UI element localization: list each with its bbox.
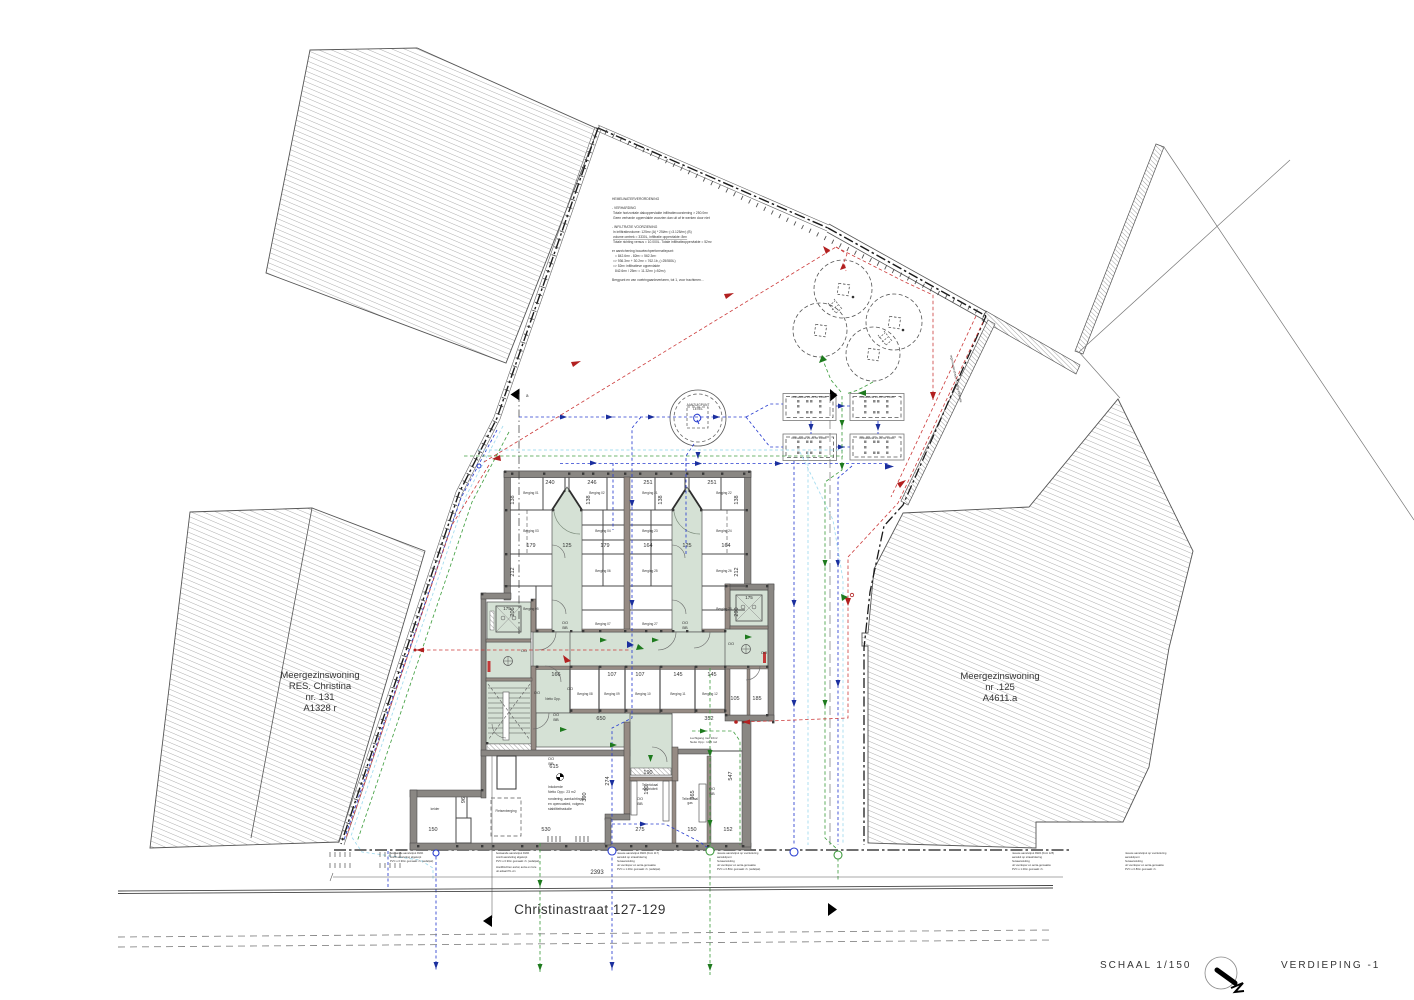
svg-text:Berging 27: Berging 27 [642,622,658,626]
svg-text:PVC u 0.80m gemaakt i.h.: PVC u 0.80m gemaakt i.h. [1125,867,1157,871]
svg-text:212: 212 [734,567,740,576]
svg-text:OO: OO [728,641,734,646]
svg-text:kelder: kelder [431,807,441,811]
svg-text:Berging 07: Berging 07 [595,622,611,626]
svg-text:206: 206 [510,607,516,616]
svg-text:= 842.6m² - 82m² = 562.3m²: = 842.6m² - 82m² = 562.3m² [615,254,657,258]
svg-text:Netto Opp.: Netto Opp. [545,697,561,701]
svg-text:SCHAAL 1/150: SCHAAL 1/150 [1100,960,1191,971]
svg-text:rondering, aanluchtingen: rondering, aanluchtingen [548,797,585,801]
svg-text:Berging 23: Berging 23 [642,529,658,533]
svg-text:OO: OO [761,650,767,655]
svg-text:Berging 10: Berging 10 [635,692,651,696]
svg-text:Berging 01: Berging 01 [523,491,539,495]
svg-text:aansluitpunt: aansluitpunt [1125,855,1140,859]
svg-text:huisaansluiting: huisaansluiting [1125,859,1143,863]
svg-text:650: 650 [596,716,605,722]
svg-text:PVC u 1.00m gemaakt i.h. (asfa: PVC u 1.00m gemaakt i.h. (asfalpat) [617,867,660,871]
svg-text:OO: OO [521,648,527,653]
svg-text:842.6m² / 25m² = 11.32m² (=52m: 842.6m² / 25m² = 11.32m² (=52m²) [615,269,666,273]
svg-text:OO: OO [534,690,540,695]
svg-text:164: 164 [643,543,652,549]
svg-text:Meergezinswoning: Meergezinswoning [960,671,1039,682]
svg-text:nieuwe aansluitput RWA (front: nieuwe aansluitput RWA (front 125) [1012,851,1054,855]
svg-text:A1328 r: A1328 r [303,703,336,714]
svg-text:179: 179 [526,543,535,549]
svg-text:240: 240 [545,480,554,486]
svg-text:RES. Christina: RES. Christina [289,681,352,692]
svg-text:infiltratiekrat 20-20-60 1000L: infiltratiekrat 20-20-60 1000L [791,395,827,399]
svg-text:Totale richting versus = 10.00: Totale richting versus = 10.000L. Totale… [613,240,713,244]
svg-text:Geen verharde oppervlakte voor: Geen verharde oppervlakte voorzien dan u… [613,216,710,220]
svg-text:2393: 2393 [590,870,604,876]
svg-text:251: 251 [643,480,652,486]
svg-text:246: 246 [587,480,596,486]
svg-text:electriciteit: electriciteit [642,787,657,791]
svg-text:BB: BB [553,717,559,722]
svg-text:138: 138 [586,495,592,504]
svg-text:uit voorkoper en aorta-gemaak: uit voorkoper en aorta-gemaakte [717,863,756,867]
svg-text:352: 352 [704,716,713,722]
svg-text:Bergpunt en van voetringaanle: Bergpunt en van voetringaanleverlaren, t… [612,278,704,282]
svg-text:Berging 22: Berging 22 [716,491,732,495]
svg-text:Berging 28: Berging 28 [716,607,732,611]
svg-text:huisaansluiting: huisaansluiting [1012,859,1030,863]
svg-text:150: 150 [687,827,696,833]
svg-text:In infiltratievolume: 125m² (: In infiltratievolume: 125m² (A) * 25l/m²… [613,230,692,234]
svg-text:volume omtrek = 3330L, infiltr: volume omtrek = 3330L, infiltratie opper… [613,235,688,239]
svg-text:290: 290 [734,607,740,616]
svg-text:LEVEL: LEVEL [693,407,703,411]
svg-text:er aanrichening bouwtechperfor: er aanrichening bouwtechperforrnatiepunt… [612,249,674,253]
svg-text:107: 107 [607,672,616,678]
svg-text:Berging 25: Berging 25 [642,569,658,573]
svg-text:PVC u 0.90m gemaakt i.h. (asf: PVC u 0.90m gemaakt i.h. (asfalpat) [390,859,433,863]
svg-text:huisaansluiting: huisaansluiting [617,859,635,863]
svg-text:- VERHARDING: - VERHARDING [612,206,636,210]
svg-text:138: 138 [510,495,516,504]
svg-text:OO: OO [567,686,573,691]
svg-text:infiltratiekrat 20-20-60 1000L: infiltratiekrat 20-20-60 1000L [791,436,827,440]
svg-text:150: 150 [428,827,437,833]
svg-text:BB: BB [637,801,643,806]
svg-text:gas: gas [687,801,693,805]
svg-text:infiltratiekrat 20-20-60 1000L: infiltratiekrat 20-20-60 1000L [859,436,895,440]
svg-text:aansluitpunt: aansluitpunt [717,855,732,859]
svg-text:138: 138 [734,495,740,504]
svg-text:125: 125 [682,543,691,549]
svg-text:Berging 02: Berging 02 [589,491,605,495]
svg-text:Berging 11: Berging 11 [670,692,685,696]
svg-text:wordt aansluiting afgekopt: wordt aansluiting afgekopt [390,855,421,859]
svg-text:nr .125: nr .125 [985,682,1015,693]
svg-text:164: 164 [721,543,730,549]
svg-text:179: 179 [600,543,609,549]
svg-text:107: 107 [635,672,644,678]
svg-text:Hoofdlochten aortal, aorta en: Hoofdlochten aortal, aorta en loze [496,865,537,869]
svg-text:VERDIEPING -1: VERDIEPING -1 [1281,960,1380,971]
svg-text:Inkokerde: Inkokerde [548,785,563,789]
svg-text:HEMELWATERVERORDENING: HEMELWATERVERORDENING [612,197,660,201]
svg-text:Berging 03: Berging 03 [523,529,539,533]
svg-text:- INFILTRATIE VOORZIENING: - INFILTRATIE VOORZIENING [612,225,658,229]
svg-text:Meergezinswoning: Meergezinswoning [280,670,359,681]
svg-text:uit asfaal PU-vrx: uit asfaal PU-vrx [496,869,516,873]
svg-text:BB: BB [562,625,568,630]
svg-text:Berging 21: Berging 21 [642,491,658,495]
svg-text:bestaande aansluitput RWA: bestaande aansluitput RWA [390,851,423,855]
svg-text:547: 547 [728,771,734,780]
svg-text:Berging 06: Berging 06 [595,569,611,573]
svg-text:185: 185 [752,696,761,702]
svg-text:Netto Opp.: 14.5 m2: Netto Opp.: 14.5 m2 [690,740,717,744]
svg-text:145: 145 [673,672,682,678]
svg-text:BB: BB [682,625,688,630]
svg-text:166: 166 [551,672,560,678]
svg-text:nieuwe aansluitput op voorkole: nieuwe aansluitput op voorkolering [717,851,759,855]
svg-text:PVC u 0.80m gemaakt i.h. (asfa: PVC u 0.80m gemaakt i.h. (asfalpat) [717,867,760,871]
svg-text:105: 105 [730,696,739,702]
svg-text:Fietsenberging: Fietsenberging [495,809,516,813]
svg-text:uit voorkoper en aorta-gemaak: uit voorkoper en aorta-gemaakte [617,863,656,867]
svg-text:Berging 26: Berging 26 [716,569,732,573]
svg-text:bestaande aansluitput DWA: bestaande aansluitput DWA [496,851,529,855]
svg-text:Berging 04: Berging 04 [595,529,611,533]
svg-text:138: 138 [658,495,664,504]
svg-text:BB: BB [548,761,554,766]
svg-text:stabiliteitsstudie: stabiliteitsstudie [548,807,572,811]
svg-text:en opencasted, volgens: en opencasted, volgens [548,802,584,806]
svg-text:96: 96 [461,797,467,803]
svg-text:530: 530 [541,827,550,833]
svg-text:uit voorkoper en aorta-gemaakt: uit voorkoper en aorta-gemaakte [1125,863,1164,867]
svg-text:wordt aansluiting afgekopt: wordt aansluiting afgekopt [496,855,527,859]
svg-text:Berging 24: Berging 24 [716,529,732,533]
svg-text:Christinastraat 127-129: Christinastraat 127-129 [514,902,666,917]
svg-text:PVC u 1.00m gemaakt i.h.: PVC u 1.00m gemaakt i.h. [1012,867,1044,871]
svg-text:A4611.a: A4611.a [983,693,1018,704]
svg-text:Berging 08: Berging 08 [577,692,593,696]
svg-text:152: 152 [723,827,732,833]
svg-text:Berging 05: Berging 05 [523,607,539,611]
svg-text:212: 212 [510,567,516,576]
svg-text:infiltratiekrat 20-20-60 1000L: infiltratiekrat 20-20-60 1000L [859,395,895,399]
svg-text:145: 145 [707,672,716,678]
svg-text:Netto Opp.: 23 m2: Netto Opp.: 23 m2 [548,790,576,794]
svg-text:uit voorkoper en aorta-gemaakt: uit voorkoper en aorta-gemaakte [1012,863,1051,867]
svg-text:Berging 09: Berging 09 [604,692,620,696]
svg-text:=> 936.3m² + 30.2m² = 762.1b,: => 936.3m² + 30.2m² = 762.1b, (=25/580L) [613,259,676,263]
svg-text:125: 125 [562,543,571,549]
svg-text:nr. 131: nr. 131 [305,692,334,703]
svg-text:aansluit op straatriolering: aansluit op straatriolering [617,855,648,859]
svg-text:nieuwe aansluitput RWA (front: nieuwe aansluitput RWA (front 117) [617,851,659,855]
svg-text:huisaansluiting: huisaansluiting [717,859,735,863]
svg-text:275: 275 [635,827,644,833]
svg-text:nieuwe aansluitput op voorkole: nieuwe aansluitput op voorkolering [1125,851,1167,855]
svg-text:175: 175 [745,595,753,600]
svg-text:PVC u 0.90m gemaakt i.h. (asf: PVC u 0.90m gemaakt i.h. (asfalpat) [496,859,539,863]
svg-text:=> 52m² infiltratieve oppervla: => 52m² infiltratieve oppervlakte [613,264,660,268]
svg-text:aansluit op straatriolering: aansluit op straatriolering [1012,855,1043,859]
svg-text:Totale horizontale dakoppervla: Totale horizontale dakoppervlakte infilt… [613,211,709,215]
svg-text:251: 251 [707,480,716,486]
svg-text:190: 190 [643,770,652,776]
